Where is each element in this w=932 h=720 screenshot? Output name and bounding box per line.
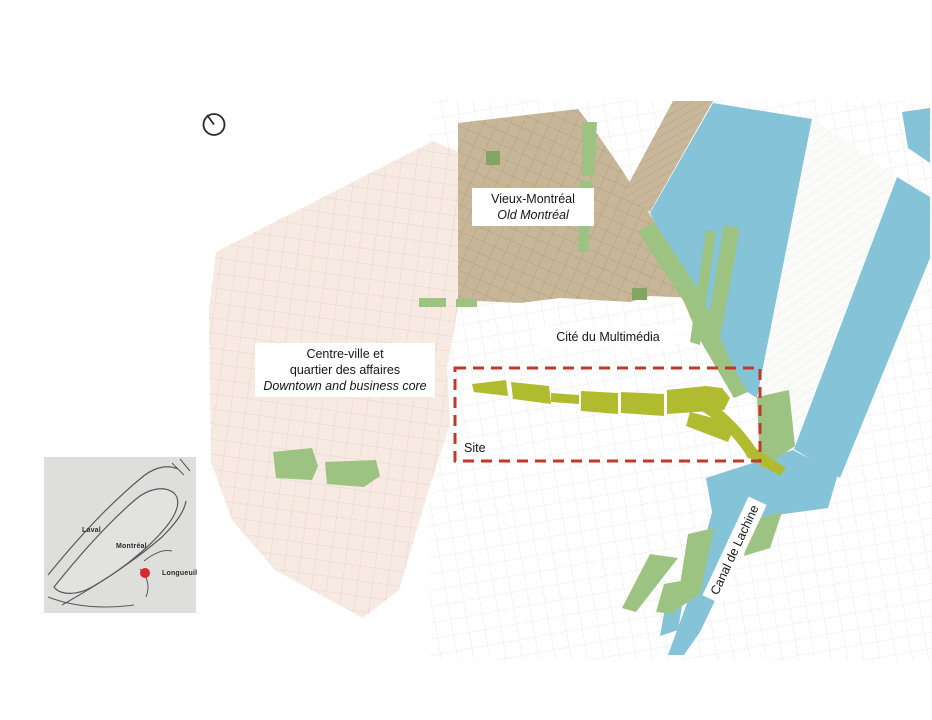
label-vieux-montreal: Vieux-Montréal Old Montréal: [472, 188, 594, 226]
label-site: Site: [458, 438, 492, 458]
label-centre-ville-fr1: Centre-ville et: [262, 346, 428, 362]
label-vieux-montreal-en: Old Montréal: [479, 207, 587, 223]
park-square-south: [632, 288, 647, 300]
park-viger-2: [456, 299, 477, 307]
label-centre-ville: Centre-ville et quartier des affaires Do…: [255, 343, 435, 397]
north-indicator-icon: [200, 111, 228, 139]
inset-label-laval: Laval: [82, 527, 101, 534]
inset-label-montreal: Montréal: [116, 543, 147, 550]
park-square-old-montreal: [486, 151, 500, 165]
label-cite-du-multimedia: Cité du Multimédia: [538, 326, 678, 348]
inset-label-longueuil: Longueuil: [162, 570, 197, 577]
inset-locator-map: Laval Montréal Longueuil: [44, 457, 196, 613]
site-location-figure: Vieux-Montréal Old Montréal Centre-ville…: [0, 0, 932, 720]
park-downtown-1: [273, 448, 318, 480]
label-centre-ville-fr2: quartier des affaires: [262, 362, 428, 378]
label-centre-ville-en: Downtown and business core: [262, 378, 428, 394]
inset-map-drawing: [44, 457, 196, 613]
site-marker-dot: [140, 568, 150, 578]
label-vieux-montreal-fr: Vieux-Montréal: [479, 191, 587, 207]
park-viger-1: [419, 298, 446, 307]
